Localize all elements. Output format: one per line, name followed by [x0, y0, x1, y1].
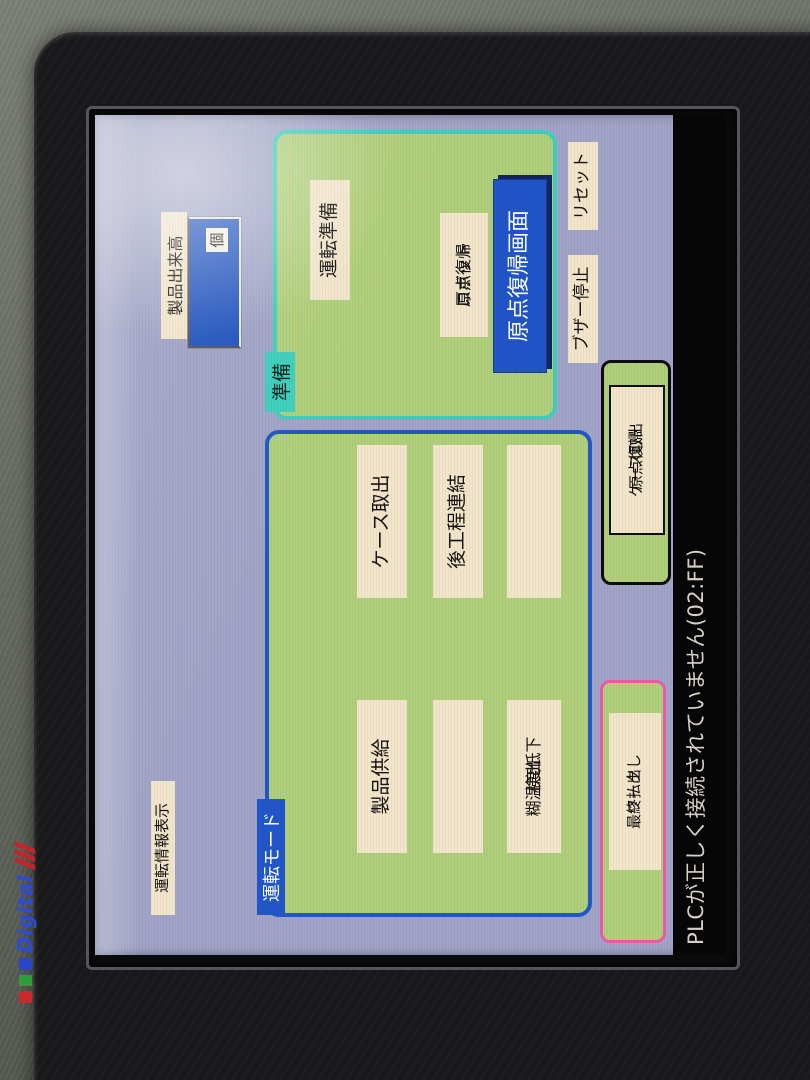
production-count-label: 製品出来高	[161, 212, 187, 339]
case-takeout-home-panel: ケース取出 原点復帰	[601, 360, 671, 585]
run-mode-panel-tab: 運転モード	[257, 799, 285, 915]
run-prepare-button[interactable]: 運転準備	[310, 180, 350, 300]
prepare-panel-tab: 準備	[265, 352, 295, 412]
robot-home-line2: 原点復帰	[455, 243, 473, 307]
hmi-screen: 運転情報表示 製品出来高 個 準備 運転準備 ロボット 原点復帰 原点復帰画面 …	[95, 115, 725, 955]
mode-button-product-supply[interactable]: 製品供給	[357, 700, 407, 853]
run-mode-panel: 運転モード 製品供給 ケース取出 後工程連結 糊温度低下 検出	[265, 430, 592, 917]
mode-button-blank-2[interactable]	[507, 445, 561, 598]
prepare-panel: 準備 運転準備 ロボット 原点復帰 原点復帰画面	[273, 130, 557, 420]
logo-red-square	[19, 991, 32, 1003]
mode-button-glue-temp-low-detect[interactable]: 糊温度低下 検出	[507, 700, 561, 853]
case-home-line2: 原点復帰	[628, 430, 645, 490]
logo-blue-square	[19, 958, 32, 970]
production-unit-label: 個	[206, 228, 228, 252]
logo-stripes-icon	[15, 845, 35, 866]
robot-home-return-button[interactable]: ロボット 原点復帰	[440, 213, 488, 337]
buzzer-stop-button[interactable]: ブザー停止	[568, 255, 598, 363]
work-button-line2: 最終払出し	[626, 754, 643, 829]
production-count-value	[204, 250, 228, 340]
case-takeout-home-button[interactable]: ケース取出 原点復帰	[609, 385, 665, 535]
mode-button-case-takeout[interactable]: ケース取出	[357, 445, 407, 598]
mode-button-label: 後工程連結	[447, 474, 469, 569]
work-discharge-panel: ワーク 最終払出し	[600, 680, 666, 943]
reset-button[interactable]: リセット	[568, 142, 598, 230]
work-final-discharge-button[interactable]: ワーク 最終払出し	[609, 713, 661, 870]
photo-frame: Digital 運転情報表示 製品出来高 個 準備 運転準備 ロボット 原点復帰…	[0, 0, 810, 1080]
logo-green-square	[19, 975, 32, 987]
production-count-display: 個	[188, 217, 241, 348]
run-info-display-button[interactable]: 運転情報表示	[151, 781, 175, 915]
mode-button-post-process-link[interactable]: 後工程連結	[433, 445, 483, 598]
brand-logo: Digital	[7, 845, 43, 1009]
plc-error-message: PLCが正しく接続されていません(02:FF)	[684, 548, 708, 945]
mode-button-blank-1[interactable]	[433, 700, 483, 853]
mode-button-label-line2: 検出	[525, 761, 543, 793]
home-return-screen-button[interactable]: 原点復帰画面	[493, 179, 547, 373]
mode-button-label: ケース取出	[371, 474, 393, 568]
brand-logo-text: Digital	[13, 875, 37, 953]
mode-button-label: 製品供給	[371, 739, 393, 815]
status-bar: PLCが正しく接続されていません(02:FF)	[673, 115, 725, 955]
